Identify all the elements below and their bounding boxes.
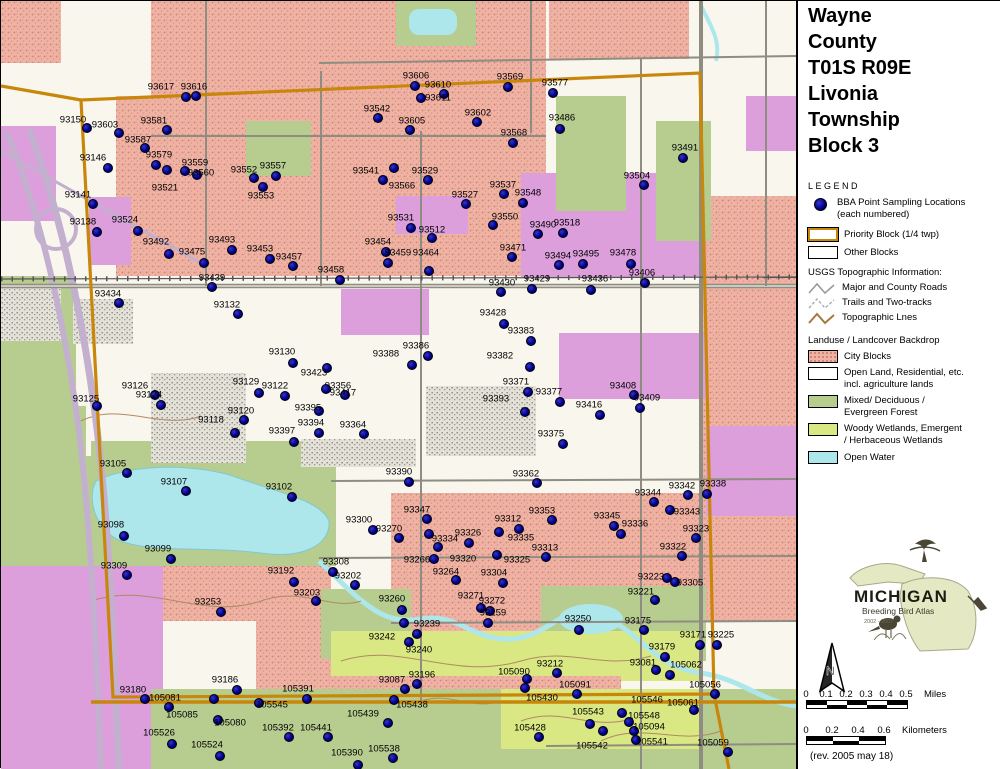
- sample-point-label: 105441: [300, 723, 332, 734]
- miles-bar: [806, 700, 908, 709]
- sample-point-label: 105524: [191, 740, 223, 751]
- sample-point-label: 105390: [331, 748, 363, 759]
- sample-point-label: 93492: [143, 237, 169, 248]
- sample-point-label: 93260: [379, 594, 405, 605]
- sample-point-label: 93397: [269, 426, 295, 437]
- sample-point-label: 93457: [276, 252, 302, 263]
- legend-item-open-water: Open Water: [808, 451, 895, 464]
- sample-point-label: 93250: [565, 614, 591, 625]
- sample-point: [119, 531, 129, 541]
- sample-point: [532, 478, 542, 488]
- legend-panel: Wayne County T01S R09E Livonia Township …: [796, 1, 1000, 769]
- forest-swatch-icon: [808, 395, 838, 408]
- sample-point-label: 93394: [298, 418, 324, 429]
- sample-point-label: 93383: [508, 326, 534, 337]
- sample-point-label: 93541: [353, 166, 379, 177]
- sample-point: [388, 753, 398, 763]
- sample-point: [389, 163, 399, 173]
- legend-item-open-land: Open Land, Residential, etc. incl. agric…: [808, 367, 964, 391]
- km-bar: [806, 736, 886, 745]
- sample-point-label: 93393: [483, 394, 509, 405]
- legend-item-city-blocks: City Blocks: [808, 350, 891, 363]
- sample-point-label: 93529: [412, 166, 438, 177]
- map-canvas: 9361793616931509360393581935879314693579…: [1, 1, 796, 769]
- sample-point: [464, 538, 474, 548]
- legend-heading: LEGEND: [808, 181, 860, 191]
- sample-point: [494, 527, 504, 537]
- sample-point-label: 93557: [260, 161, 286, 172]
- sample-point: [265, 254, 275, 264]
- sample-point-label: 93313: [532, 543, 558, 554]
- sample-point: [598, 726, 608, 736]
- sample-point: [405, 125, 415, 135]
- sample-point: [199, 258, 209, 268]
- sample-point: [412, 629, 422, 639]
- sample-point-label: 93270: [376, 524, 402, 535]
- sample-point-label: 93336: [622, 519, 648, 530]
- sample-point-label: 93521: [152, 183, 178, 194]
- page-title: Wayne County T01S R09E Livonia Township …: [808, 3, 911, 159]
- scale-tick-label: 0: [803, 689, 808, 700]
- sample-point-label: 93552: [231, 165, 257, 176]
- legend-item-label: Major and County Roads: [842, 282, 947, 294]
- sample-point-label: 105428: [514, 723, 546, 734]
- sample-point: [233, 309, 243, 319]
- sample-point-label: 93577: [542, 78, 568, 89]
- sample-point: [288, 358, 298, 368]
- sample-point-label: 93406: [629, 268, 655, 279]
- sample-point-label: 93504: [624, 171, 650, 182]
- north-label: N: [826, 664, 835, 678]
- sample-point: [520, 683, 530, 693]
- sample-point-label: 93266: [404, 555, 430, 566]
- sample-point: [181, 486, 191, 496]
- sample-point: [429, 554, 439, 564]
- sample-point: [616, 529, 626, 539]
- sample-point: [271, 171, 281, 181]
- sample-point-label: 93304: [481, 568, 507, 579]
- sample-point-label: 93371: [503, 377, 529, 388]
- wetland-swatch-icon: [808, 423, 838, 436]
- legend-item-wetlands: Woody Wetlands, Emergent / Herbaceous We…: [808, 423, 962, 447]
- sample-point: [423, 175, 433, 185]
- sample-point: [406, 223, 416, 233]
- sample-point-label: 105542: [576, 741, 608, 752]
- scale-bar-kilometers: 00.20.40.6Kilometers: [806, 725, 996, 745]
- scale-tick-label: 0: [803, 725, 808, 736]
- sample-point-label: 93439: [199, 273, 225, 284]
- sample-point-label: 93180: [120, 685, 146, 696]
- sample-point-label: 93347: [404, 505, 430, 516]
- sample-point: [162, 165, 172, 175]
- sample-point-label: 105094: [633, 722, 665, 733]
- sample-point-label: 93087: [379, 675, 405, 686]
- sample-point-label: 93335: [508, 533, 534, 544]
- sample-point-label: 105391: [282, 684, 314, 695]
- scale-tick-label: 0.4: [879, 689, 892, 700]
- sample-point: [399, 618, 409, 628]
- sample-point: [216, 607, 226, 617]
- sample-point: [710, 689, 720, 699]
- sample-point: [335, 275, 345, 285]
- sample-point: [541, 552, 551, 562]
- sample-point: [151, 160, 161, 170]
- sample-point-label: 93105: [100, 459, 126, 470]
- sample-point: [640, 278, 650, 288]
- sample-point-label: 93338: [700, 479, 726, 490]
- sample-point: [572, 689, 582, 699]
- sample-point-label: 105545: [256, 700, 288, 711]
- sample-point-label: 105056: [689, 680, 721, 691]
- sample-point: [578, 259, 588, 269]
- sample-point-label: 105526: [143, 728, 175, 739]
- sample-point-label: 93417: [330, 388, 356, 399]
- sample-point-label: 93312: [495, 514, 521, 525]
- sample-point-label: 105062: [670, 660, 702, 671]
- sample-point-label: 93171: [680, 630, 706, 641]
- sample-point: [350, 580, 360, 590]
- legend-item-trails: Trails and Two-tracks: [808, 296, 932, 310]
- sampling-points-layer: 9361793616931509360393581935879314693579…: [1, 1, 796, 769]
- sample-point-label: 93550: [492, 212, 518, 223]
- sample-point-label: 93081: [630, 658, 656, 669]
- sample-point: [133, 226, 143, 236]
- sample-point-label: 93537: [490, 180, 516, 191]
- sample-point-label: 93203: [294, 588, 320, 599]
- sample-point-label: 93129: [233, 377, 259, 388]
- logo-subtitle: Breeding Bird Atlas: [862, 606, 934, 616]
- sample-point-label: 93395: [295, 403, 321, 414]
- sample-point: [156, 400, 166, 410]
- city-blocks-swatch-icon: [808, 350, 838, 363]
- sample-point: [552, 668, 562, 678]
- sample-point-label: 93409: [634, 393, 660, 404]
- sample-point: [496, 287, 506, 297]
- miles-ticks: 00.10.20.30.40.5Miles: [806, 689, 996, 700]
- sample-point: [533, 229, 543, 239]
- sample-point-label: 93259: [480, 608, 506, 619]
- legend-item-label: Other Blocks: [844, 247, 898, 259]
- sample-point-label: 93202: [335, 571, 361, 582]
- sample-point-label: 93569: [497, 72, 523, 83]
- sample-point-label: 105090: [498, 667, 530, 678]
- sample-point-label: 93493: [209, 235, 235, 246]
- sample-point: [712, 640, 722, 650]
- sample-point: [548, 88, 558, 98]
- sample-point-label: 93179: [649, 642, 675, 653]
- sample-point: [683, 490, 693, 500]
- sample-point-label: 93386: [403, 341, 429, 352]
- topo-zigzag-icon: [808, 311, 836, 325]
- hawk-icon: [915, 540, 936, 563]
- sample-point-label: 93253: [195, 597, 221, 608]
- sample-point-label: 93423: [301, 368, 327, 379]
- sample-point: [92, 227, 102, 237]
- revision-note: (rev. 2005 may 18): [810, 751, 893, 762]
- sample-point-label: 93464: [413, 248, 439, 259]
- sample-point-label: 93107: [161, 477, 187, 488]
- sample-point-icon: [814, 198, 827, 211]
- sample-point: [461, 199, 471, 209]
- sample-point-label: 93118: [198, 415, 224, 426]
- sample-point-label: 93490: [530, 220, 556, 231]
- sample-point: [585, 719, 595, 729]
- km-ticks: 00.20.40.6Kilometers: [806, 725, 996, 736]
- sample-point-label: 93542: [364, 104, 390, 115]
- sample-point-label: 93434: [95, 289, 121, 300]
- sample-point: [207, 282, 217, 292]
- sample-point: [665, 670, 675, 680]
- sample-point-label: 93130: [269, 347, 295, 358]
- sample-point-label: 93579: [146, 150, 172, 161]
- sample-point-label: 93587: [125, 135, 151, 146]
- sample-point: [404, 477, 414, 487]
- sample-point-label: 93566: [389, 181, 415, 192]
- sample-point: [215, 751, 225, 761]
- sample-point: [209, 694, 219, 704]
- sample-point-label: 93524: [112, 215, 138, 226]
- sample-point-label: 105081: [149, 693, 181, 704]
- sample-point: [103, 163, 113, 173]
- open-land-swatch-icon: [808, 367, 838, 380]
- sample-point-label: 93099: [145, 544, 171, 555]
- scale-unit-label: Kilometers: [902, 725, 947, 736]
- sample-point-label: 93486: [549, 113, 575, 124]
- sample-point-label: 93531: [388, 213, 414, 224]
- sample-point-label: 93602: [465, 108, 491, 119]
- sample-point-label: 93326: [455, 528, 481, 539]
- sample-point-label: 93175: [625, 616, 651, 627]
- sample-point: [412, 679, 422, 689]
- scale-bar-miles: 00.10.20.30.40.5Miles: [806, 689, 996, 709]
- sample-point-label: 105538: [368, 744, 400, 755]
- sample-point: [677, 551, 687, 561]
- legend-item-sampling-points: BBA Point Sampling Locations (each numbe…: [808, 197, 965, 221]
- sample-point: [695, 640, 705, 650]
- sample-point-label: 93138: [70, 217, 96, 228]
- legend-item-label: Priority Block (1/4 twp): [844, 229, 939, 241]
- sample-point: [520, 407, 530, 417]
- sample-point-label: 93132: [214, 300, 240, 311]
- scale-tick-label: 0.6: [877, 725, 890, 736]
- sample-point-label: 93364: [340, 420, 366, 431]
- sample-point: [483, 618, 493, 628]
- sample-point-label: 93478: [610, 248, 636, 259]
- sample-point: [555, 397, 565, 407]
- sample-point-label: 93617: [148, 82, 174, 93]
- sample-point-label: 93196: [409, 670, 435, 681]
- sample-point-label: 93436: [582, 274, 608, 285]
- sample-point: [558, 439, 568, 449]
- sample-point-label: 93459: [385, 248, 411, 259]
- priority-block-swatch-icon: [808, 228, 838, 241]
- sample-point: [280, 391, 290, 401]
- legend-item-label: Open Water: [844, 452, 895, 464]
- legend-item-other-blocks: Other Blocks: [808, 246, 898, 259]
- sample-point: [639, 180, 649, 190]
- sample-point: [383, 258, 393, 268]
- sample-point-label: 93494: [545, 251, 571, 262]
- sample-point-label: 105392: [262, 723, 294, 734]
- sample-point-label: 93223: [638, 572, 664, 583]
- sample-point-label: 93102: [266, 482, 292, 493]
- sample-point-label: 93305: [677, 578, 703, 589]
- sample-point: [617, 708, 627, 718]
- sample-point-label: 93342: [669, 481, 695, 492]
- scale-tick-label: 0.3: [859, 689, 872, 700]
- sample-point: [499, 319, 509, 329]
- sample-point: [397, 605, 407, 615]
- sample-point-label: 93221: [628, 587, 654, 598]
- legend-item-label: Woody Wetlands, Emergent / Herbaceous We…: [844, 423, 962, 447]
- sample-point-label: 93610: [425, 80, 451, 91]
- sample-point-label: 93429: [524, 274, 550, 285]
- sample-point-label: 105546: [631, 695, 663, 706]
- sample-point-label: 93581: [141, 116, 167, 127]
- sample-point: [423, 351, 433, 361]
- sample-point-label: 93343: [674, 507, 700, 518]
- sample-point: [526, 336, 536, 346]
- sample-point-label: 105085: [166, 710, 198, 721]
- sample-point-label: 93475: [179, 247, 205, 258]
- sample-point: [289, 577, 299, 587]
- sample-point-label: 93568: [501, 128, 527, 139]
- sample-point: [472, 117, 482, 127]
- sample-point-label: 93388: [373, 349, 399, 360]
- sample-point: [378, 175, 388, 185]
- road-zigzag-icon: [808, 281, 836, 295]
- sample-point-label: 93240: [406, 645, 432, 656]
- sample-point-label: 105438: [396, 700, 428, 711]
- sample-point-label: 93458: [318, 265, 344, 276]
- sample-point: [289, 437, 299, 447]
- page: 9361793616931509360393581935879314693579…: [0, 0, 1000, 768]
- sample-point: [181, 92, 191, 102]
- sample-point-label: 93362: [513, 469, 539, 480]
- legend-item-label: Mixed/ Deciduous / Evergreen Forest: [844, 395, 925, 419]
- sample-point-label: 93454: [365, 237, 391, 248]
- sample-point-label: 93471: [500, 243, 526, 254]
- sample-point: [691, 533, 701, 543]
- sample-point: [232, 685, 242, 695]
- logo-years: 2002 - 2007: [864, 619, 893, 625]
- sample-point: [164, 249, 174, 259]
- sample-point-label: 93120: [228, 406, 254, 417]
- sample-point-label: 105430: [526, 693, 558, 704]
- sample-point-label: 93345: [594, 511, 620, 522]
- sample-point-label: 93512: [419, 225, 445, 236]
- sample-point: [635, 403, 645, 413]
- sample-point: [433, 542, 443, 552]
- sample-point-label: 105091: [559, 680, 591, 691]
- legend-item-priority-block: Priority Block (1/4 twp): [808, 228, 939, 241]
- sample-point: [639, 625, 649, 635]
- sample-point: [555, 124, 565, 134]
- sample-point-label: 93453: [247, 244, 273, 255]
- sample-point: [503, 82, 513, 92]
- sample-point-label: 93239: [414, 619, 440, 630]
- sample-point: [373, 113, 383, 123]
- sample-point: [554, 260, 564, 270]
- sample-point: [660, 652, 670, 662]
- sample-point-label: 93150: [60, 115, 86, 126]
- sample-point-label: 93408: [610, 381, 636, 392]
- sample-point: [525, 362, 535, 372]
- sample-point: [191, 91, 201, 101]
- sample-point-label: 105541: [636, 737, 668, 748]
- sample-point: [523, 387, 533, 397]
- scale-tick-label: 0.1: [819, 689, 832, 700]
- sample-point-label: 93212: [537, 659, 563, 670]
- sample-point-label: 93264: [433, 567, 459, 578]
- scale-tick-label: 0.5: [899, 689, 912, 700]
- sample-point: [586, 285, 596, 295]
- sample-point: [518, 198, 528, 208]
- sample-point-label: 93186: [212, 675, 238, 686]
- scale-unit-label: Miles: [924, 689, 946, 700]
- sample-point: [227, 245, 237, 255]
- sample-point: [230, 428, 240, 438]
- sample-point-label: 93605: [399, 116, 425, 127]
- sample-point-label: 93611: [425, 93, 451, 104]
- sample-point: [702, 489, 712, 499]
- sample-point: [114, 298, 124, 308]
- sample-point: [394, 533, 404, 543]
- sample-point: [302, 694, 312, 704]
- sample-point-label: 105059: [697, 738, 729, 749]
- sample-point-label: 105061: [667, 698, 699, 709]
- sample-point: [678, 153, 688, 163]
- sample-point-label: 93548: [515, 188, 541, 199]
- sample-point: [122, 468, 132, 478]
- sample-point: [492, 550, 502, 560]
- sample-point-label: 93325: [504, 555, 530, 566]
- sample-point-label: 105543: [572, 707, 604, 718]
- sample-point: [499, 189, 509, 199]
- sample-point: [88, 199, 98, 209]
- sample-point-label: 93430: [489, 278, 515, 289]
- sample-point: [723, 747, 733, 757]
- sample-point-label: 93192: [268, 566, 294, 577]
- sample-point-label: 93390: [386, 467, 412, 478]
- sample-point: [284, 732, 294, 742]
- sample-point: [407, 360, 417, 370]
- sample-point-label: 93146: [80, 153, 106, 164]
- sample-point-label: 93309: [101, 561, 127, 572]
- sample-point-label: 93416: [576, 400, 602, 411]
- sample-point-label: 93322: [660, 542, 686, 553]
- sample-point: [288, 261, 298, 271]
- sample-point: [507, 252, 517, 262]
- sample-point: [410, 81, 420, 91]
- legend-item-label: City Blocks: [844, 351, 891, 363]
- legend-item-label: Open Land, Residential, etc. incl. agric…: [844, 367, 964, 391]
- legend-item-major-roads: Major and County Roads: [808, 281, 947, 295]
- logo-title: MICHIGAN: [854, 587, 948, 606]
- sample-point: [508, 138, 518, 148]
- sample-point-label: 93344: [635, 488, 661, 499]
- sample-point-label: 93377: [536, 387, 562, 398]
- sample-point-label: 93495: [573, 249, 599, 260]
- sample-point: [166, 554, 176, 564]
- sample-point: [424, 266, 434, 276]
- sample-point: [239, 415, 249, 425]
- sample-point-label: 93225: [708, 630, 734, 641]
- open-water-swatch-icon: [808, 451, 838, 464]
- sample-point: [595, 410, 605, 420]
- sample-point: [383, 718, 393, 728]
- sample-point: [547, 515, 557, 525]
